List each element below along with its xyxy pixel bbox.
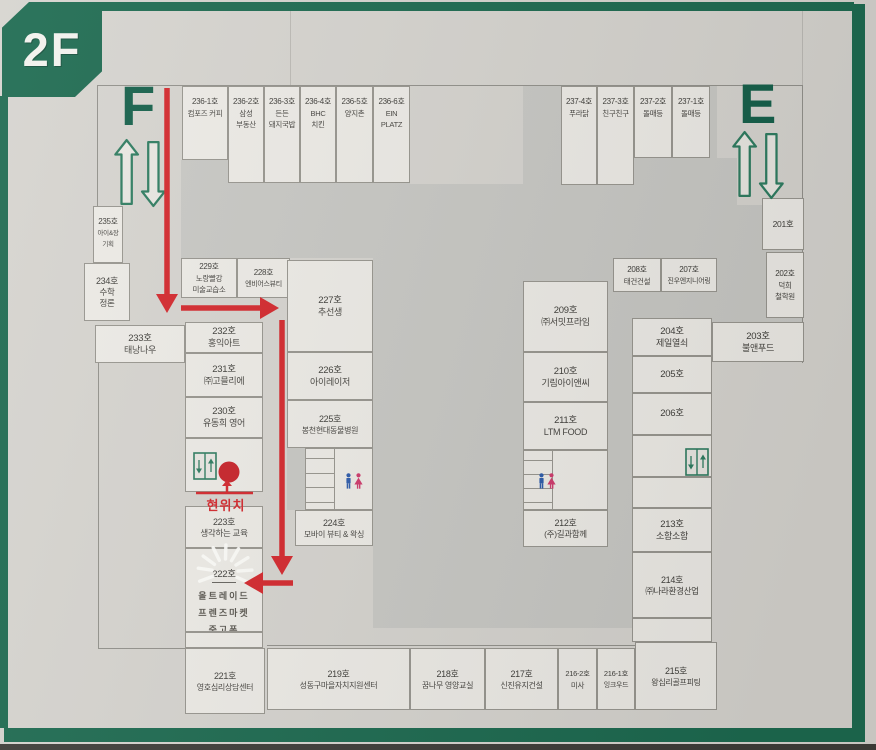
room-name: 모바이 뷰티 & 왁싱 [304,529,364,540]
room-number: 214호 [661,574,683,586]
room-number: 213호 [660,519,683,531]
room-name: 철학원 [775,291,795,302]
room-231호: 231호㈜고믈리에 [185,353,263,397]
room-222호: 222호올트레이드프렌즈마켓중고폰 [185,548,263,632]
void-area [608,322,632,628]
room-name: 부동산 [236,119,256,130]
room-name: ㈜서밋프라임 [541,317,590,328]
room-237-3호: 237-3호친구친구 [597,86,634,185]
room-210호: 210호기림아이앤씨 [523,352,608,402]
room-name: 소함소함 [656,531,688,542]
room-name: 아이레이저 [310,377,350,388]
room-236-4호: 236-4호BHC치킨 [300,86,336,183]
room-number: 218호 [436,668,458,680]
void-area [523,547,608,628]
room-236-6호: 236-6호EINPLATZ [373,86,410,183]
room-name: 돼지국밥 [269,119,295,130]
room-205호: 205호 [632,356,712,393]
room-221호: 221호영호심리상담센터 [185,648,265,714]
room-214호: 214호㈜나라환경산업 [632,552,712,618]
room-name: ㈜나라환경산업 [645,586,698,597]
route-arrowhead [260,297,279,319]
room-number: 237-2호 [640,96,666,108]
floor-label: 2F [23,22,82,77]
room-name: 든든 [275,108,288,119]
room-name: 추선생 [318,307,342,318]
room-236-3호: 236-3호든든돼지국밥 [264,86,300,183]
outline-line [98,363,99,649]
room-234호: 234호수학정론 [84,263,130,321]
room-216-1호: 216-1호잉크우드 [597,648,635,710]
room-name: 태건건설 [624,276,650,287]
room-201호: 201호 [762,198,804,250]
room-name: 푸라닭 [569,108,589,119]
frame-border-bottom [4,728,865,742]
room-number: 222호 [212,569,235,583]
void-area [287,448,305,510]
room-name: 돌매등 [681,108,701,119]
room-216-2호: 216-2호미사 [558,648,597,710]
room-name: 성동구마을자치지원센터 [300,680,378,691]
room-name: 엔비어스뷰티 [245,279,282,290]
room-name: 불앤푸드 [742,343,774,354]
elevator-icon [685,448,709,476]
stall-divider-line [306,502,334,503]
room-206호: 206호 [632,393,712,435]
floor-badge: 2F [2,2,102,97]
room-209호: 209호㈜서밋프라임 [523,281,608,352]
route-arrowhead [156,294,178,313]
room-name: 컴포즈 커피 [188,108,223,119]
room-number: 205호 [660,369,683,381]
current-location-label: 현위치 [186,495,266,514]
room-237-2호: 237-2호돌매등 [634,86,672,158]
room-name: ㈜고믈리에 [204,376,245,387]
room-number: 236-4호 [305,96,331,108]
stairwell-letter-F: F [121,78,155,134]
room-number: 234호 [96,275,118,287]
room-number: 203호 [746,331,769,343]
room-number: 216-1호 [604,668,628,680]
outline-line [802,11,803,85]
room-211호: 211호LTM FOOD [523,402,608,450]
room-237-1호: 237-1호돌매등 [672,86,710,158]
room-name: 기획 [102,239,113,250]
room-number: 208호 [627,264,647,276]
room-number: 207호 [679,264,699,276]
stairwell-letter-E: E [739,76,776,132]
restroom-men-women-icon [344,473,364,489]
room-name: 양지촌 [345,108,365,119]
room-empty [185,438,263,492]
room-number: 236-1호 [192,96,218,108]
room-224호: 224호모바이 뷰티 & 왁싱 [295,510,373,546]
room-name: 신진유지건설 [500,680,542,691]
frame-border-top [98,2,854,11]
stairs-up-down-icon [730,128,786,200]
room-228호: 228호엔비어스뷰티 [237,258,290,298]
room-number: 209호 [554,305,577,317]
room-229호: 229호노랑빨강미술교습소 [181,258,237,298]
restroom [523,450,608,510]
room-235호: 235호아이&장기획 [93,206,123,263]
stall-divider-line [524,460,552,461]
room-number: 233호 [128,333,151,345]
room-name: 기림아이앤씨 [542,378,590,389]
stall-divider-line [334,449,335,509]
room-236-2호: 236-2호삼성부동산 [228,86,264,183]
outline-line [290,11,291,85]
room-name: 정론 [99,298,114,309]
room-name: 미술교습소 [193,284,226,295]
room-name: 중고폰 [209,623,240,632]
room-number: 236-5호 [341,96,367,108]
room-number: 201호 [773,218,794,230]
room-number: 212호 [554,517,576,529]
room-number: 228호 [254,267,274,279]
room-number: 216-2호 [565,668,589,680]
room-empty [632,435,712,477]
room-number: 236-3호 [269,96,295,108]
room-name: 생각하는 교육 [200,528,247,539]
room-number: 202호 [775,268,795,280]
room-202호: 202호덕희철학원 [766,252,804,318]
room-name: 왕십리골프피팅 [651,677,700,688]
room-219호: 219호성동구마을자치지원센터 [267,648,410,710]
room-number: 236-2호 [233,96,259,108]
room-number: 221호 [214,670,236,682]
room-empty [632,477,712,508]
floor-plan-photo: 2F 236-1호컴포즈 커피236-2호삼성부동산236-3호든든돼지국밥23… [0,0,876,750]
room-name: 치킨 [311,119,324,130]
stall-divider-line [306,487,334,488]
room-number: 235호 [98,216,118,228]
room-217호: 217호신진유지건설 [485,648,558,710]
room-225호: 225호봉천현대동물병원 [287,400,373,448]
stall-divider-line [306,458,334,459]
room-208호: 208호태건건설 [613,258,661,292]
room-number: 231호 [212,364,235,376]
void-area [373,184,523,628]
room-212호: 212호(주)길과함께 [523,510,608,547]
room-name: 제일열쇠 [656,338,688,349]
room-name: 홍익아트 [208,338,240,349]
outline-line [98,648,186,649]
room-name: 유동희 영어 [203,418,245,429]
room-number: 211호 [554,415,577,427]
restroom-woman-icon [354,473,362,489]
room-203호: 203호불앤푸드 [712,322,804,362]
room-218호: 218호꿈나무 영양교실 [410,648,485,710]
room-number: 229호 [199,261,219,273]
room-215호: 215호왕십리골프피팅 [635,642,717,710]
room-232호: 232호홍익아트 [185,322,263,353]
room-name: 꿈나무 영양교실 [422,680,473,691]
room-empty [632,618,712,642]
stairs-up-down-icon [112,136,168,208]
room-number: 217호 [510,668,532,680]
room-number: 215호 [665,665,687,677]
room-207호: 207호진우엔지니어링 [661,258,717,292]
route-arrowhead [271,556,293,575]
room-204호: 204호제일열쇠 [632,318,712,356]
room-name: 친구친구 [602,108,628,119]
room-name: 삼성 [239,108,252,119]
frame-border-right [852,4,865,738]
room-name: (주)길과함께 [544,529,587,540]
room-name: 돌매등 [643,108,663,119]
room-number: 210호 [554,366,577,378]
room-237-4호: 237-4호푸라닭 [561,86,597,185]
room-230호: 230호유동희 영어 [185,397,263,438]
room-name: 수학 [99,287,114,298]
room-number: 224호 [323,517,345,529]
room-name: LTM FOOD [544,427,587,438]
room-number: 204호 [660,326,683,338]
stairs-down-icon [760,134,783,198]
restroom-man-icon [539,473,543,488]
room-number: 237-3호 [602,96,628,108]
stall-divider-line [306,473,334,474]
room-empty [185,632,263,648]
photo-edge-shadow [0,744,876,750]
stairs-down-icon [142,142,165,206]
stall-divider-line [524,502,552,503]
room-number: 236-6호 [378,96,404,108]
restroom [305,448,373,510]
stairs-up-icon [733,132,756,196]
restroom-men-women-icon [537,473,557,489]
room-number: 227호 [318,295,341,307]
room-name: BHC [311,108,326,119]
room-213호: 213호소함소함 [632,508,712,552]
room-number: 230호 [212,406,235,418]
room-name: 잉크우드 [604,680,629,691]
room-236-1호: 236-1호컴포즈 커피 [182,86,228,160]
room-name: 덕희 [778,280,791,291]
room-name: 프렌즈마켓 [198,606,249,621]
room-name: 아이&장 [97,228,118,239]
room-number: 219호 [327,668,349,680]
room-name: EIN [386,108,398,119]
room-233호: 233호태낭나우 [95,325,185,363]
room-number: 237-4호 [566,96,592,108]
floor-map: 236-1호컴포즈 커피236-2호삼성부동산236-3호든든돼지국밥236-4… [0,0,876,750]
room-226호: 226호아이레이저 [287,352,373,400]
room-227호: 227호추선생 [287,260,373,352]
room-number: 237-1호 [678,96,704,108]
room-name: 노랑빨강 [196,273,222,284]
room-name: PLATZ [381,119,402,130]
frame-border-left [0,96,8,728]
stairs-up-icon [115,140,138,204]
room-name: 봉천현대동물병원 [302,425,358,436]
elevator-icon [193,452,217,480]
room-236-5호: 236-5호양지촌 [336,86,373,183]
room-number: 206호 [660,408,683,420]
room-name: 태낭나우 [124,345,156,356]
room-number: 223호 [213,516,235,528]
room-number: 225호 [319,413,341,425]
restroom-woman-icon [547,473,555,489]
room-number: 226호 [318,365,341,377]
room-name: 진우엔지니어링 [668,276,711,287]
room-name: 올트레이드 [198,589,249,604]
room-name: 영호심리상담센터 [197,682,253,693]
outline-line [97,85,98,207]
room-name: 미사 [571,680,584,691]
restroom-man-icon [346,473,350,488]
room-number: 232호 [212,326,235,338]
